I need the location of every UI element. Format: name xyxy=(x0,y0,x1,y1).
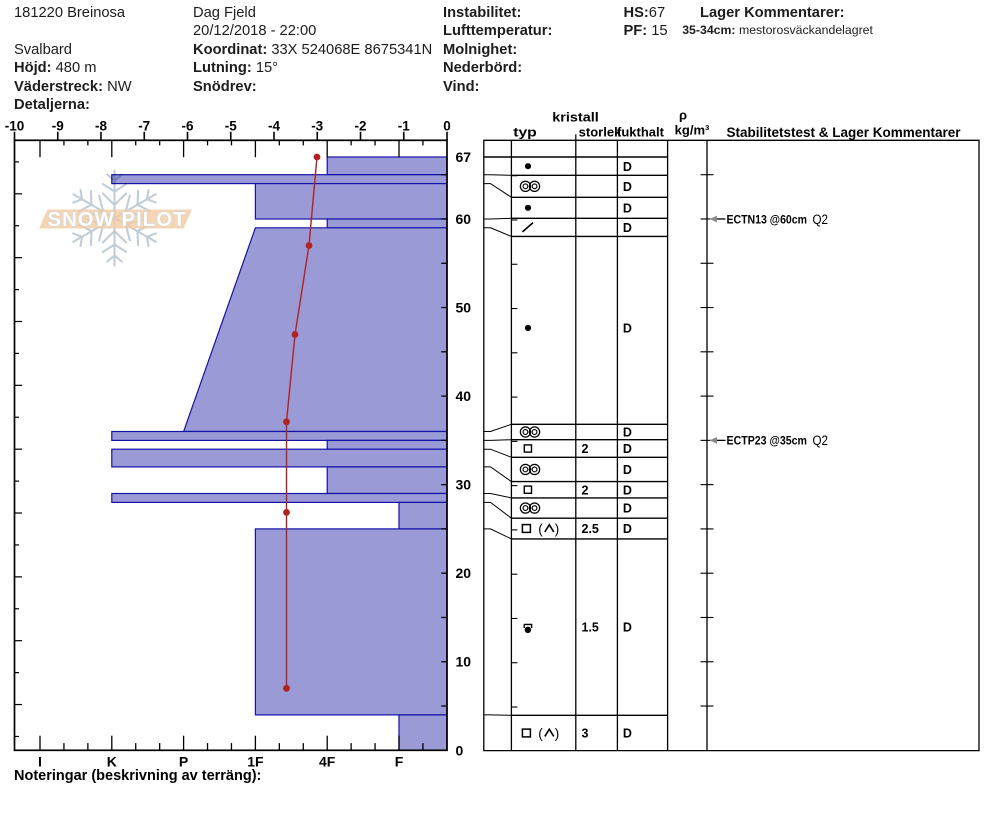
svg-text:(: ( xyxy=(538,521,543,536)
svg-text:2: 2 xyxy=(582,442,589,456)
svg-text:4F: 4F xyxy=(319,754,336,770)
svg-text:D: D xyxy=(623,727,632,741)
svg-text:fukthalt: fukthalt xyxy=(617,125,665,140)
svg-text:3: 3 xyxy=(582,727,589,741)
svg-text:D: D xyxy=(623,463,632,477)
svg-text:2: 2 xyxy=(582,483,589,497)
svg-text:ECTP23 @35cm: ECTP23 @35cm xyxy=(727,436,808,448)
svg-text:-10: -10 xyxy=(5,119,25,134)
svg-text:30: 30 xyxy=(456,477,472,493)
svg-text:ECTN13 @60cm: ECTN13 @60cm xyxy=(727,214,808,226)
svg-text:20: 20 xyxy=(456,565,472,581)
svg-text:D: D xyxy=(623,502,632,516)
svg-text:1.5: 1.5 xyxy=(582,621,599,635)
svg-text:): ) xyxy=(555,521,560,536)
svg-text:-6: -6 xyxy=(181,119,193,134)
svg-text:SNOW PILOT: SNOW PILOT xyxy=(48,208,187,231)
svg-text:60: 60 xyxy=(456,211,472,227)
svg-text:kg/m³: kg/m³ xyxy=(675,123,710,138)
svg-text:D: D xyxy=(623,426,632,440)
svg-text:0: 0 xyxy=(456,742,464,758)
svg-text:50: 50 xyxy=(456,300,472,316)
svg-text:Q2: Q2 xyxy=(813,212,829,227)
svg-text:D: D xyxy=(623,621,632,635)
svg-text:storlek: storlek xyxy=(579,125,622,140)
svg-text:F: F xyxy=(395,754,404,770)
svg-text:-1: -1 xyxy=(398,119,410,134)
svg-text:D: D xyxy=(623,522,632,536)
svg-text:D: D xyxy=(623,483,632,497)
svg-text:D: D xyxy=(623,221,632,235)
svg-text:(: ( xyxy=(538,726,543,741)
svg-text:40: 40 xyxy=(456,388,472,404)
svg-text:-7: -7 xyxy=(138,119,150,134)
svg-text:-9: -9 xyxy=(52,119,64,134)
svg-text:2.5: 2.5 xyxy=(582,522,599,536)
svg-text:Noteringar (beskrivning av ter: Noteringar (beskrivning av terräng): xyxy=(14,768,261,784)
svg-text:0: 0 xyxy=(443,119,451,134)
svg-text:-5: -5 xyxy=(225,119,237,134)
svg-text:-2: -2 xyxy=(354,119,366,134)
svg-text:67: 67 xyxy=(456,149,472,165)
svg-text:Stabilitetstest & Lager Kommen: Stabilitetstest & Lager Kommentarer xyxy=(727,125,962,140)
svg-text:D: D xyxy=(623,160,632,174)
svg-text:-4: -4 xyxy=(268,119,280,134)
svg-text:D: D xyxy=(623,322,632,336)
svg-text:D: D xyxy=(623,180,632,194)
svg-text:): ) xyxy=(555,726,560,741)
svg-text:Q2: Q2 xyxy=(813,433,829,448)
svg-text:kristall: kristall xyxy=(552,110,599,125)
svg-text:typ: typ xyxy=(513,125,537,140)
svg-text:D: D xyxy=(623,442,632,456)
svg-text:-8: -8 xyxy=(95,119,107,134)
svg-text:10: 10 xyxy=(456,654,472,670)
svg-text:ρ: ρ xyxy=(679,108,687,123)
svg-text:D: D xyxy=(623,201,632,215)
svg-text:-3: -3 xyxy=(311,119,323,134)
